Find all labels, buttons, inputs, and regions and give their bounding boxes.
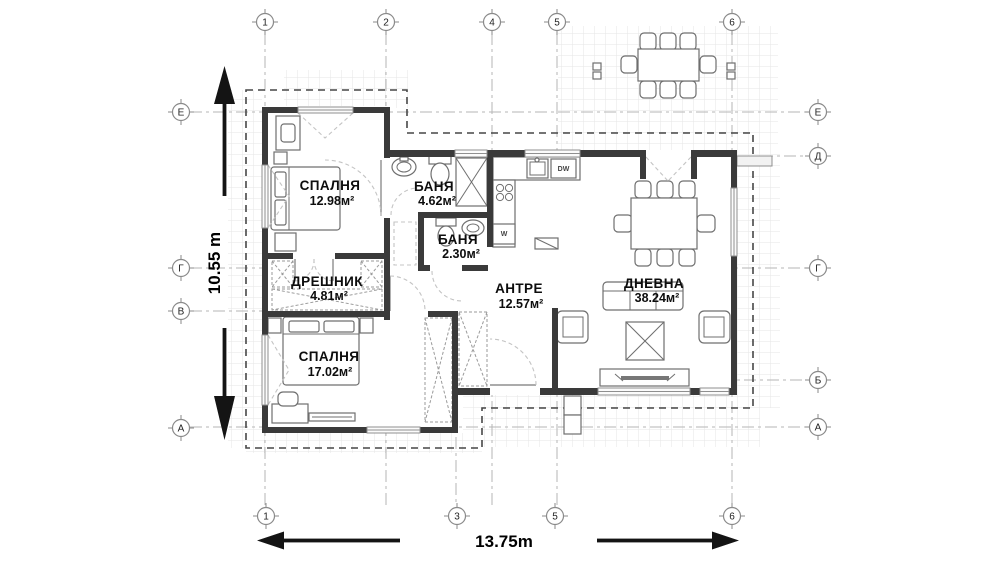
sink-icon [392,157,416,176]
room-label-closet: ДРЕШНИК [291,274,363,289]
svg-text:Б: Б [815,376,822,387]
axis-bubble-bottom-6: 6 [719,503,745,529]
room-area-hall: 12.57м² [499,297,544,311]
axis-bubble-right-a: А [805,414,831,440]
room-area-living: 38.24м² [635,291,680,305]
axis-bubble-left-e: Е [168,99,194,125]
axis-bubble-top-1: 1 [252,9,278,35]
washer-label: W [501,231,508,238]
svg-text:Г: Г [178,264,184,275]
axis-bubble-bottom-3: 3 [444,503,470,529]
room-area-bedroom-1: 12.98м² [310,194,355,208]
axis-bubble-right-e: Е [805,99,831,125]
svg-text:5: 5 [554,18,560,29]
floor-plan-page: DW W [0,0,1000,563]
svg-text:6: 6 [729,512,735,523]
room-label-bedroom-1: СПАЛНЯ [300,178,361,193]
entry-steps-icon [564,396,581,434]
svg-text:Г: Г [815,264,821,275]
shower-icon [456,158,487,206]
width-dimension: 13.75m [257,532,739,552]
chimney-stub [737,156,772,166]
room-label-hall: АНТРЕ [495,281,543,296]
axis-bubble-right-b: Б [805,367,831,393]
radiator-icon [309,413,355,421]
axis-bubble-left-g: Г [168,255,194,281]
room-label-living: ДНЕВНА [624,276,684,291]
svg-text:В: В [178,307,185,318]
floor-plan-drawing: DW W [0,0,1000,563]
axis-bubble-right-g: Г [805,255,831,281]
svg-text:Е: Е [815,108,822,119]
svg-text:1: 1 [262,18,268,29]
axis-bubble-right-d: Д [805,143,831,169]
room-area-bath-1: 4.62м² [418,194,456,208]
svg-text:А: А [178,424,185,435]
dishwasher-icon: DW [551,159,576,178]
svg-text:5: 5 [552,512,558,523]
axis-bubble-bottom-5: 5 [542,503,568,529]
height-dimension-label: 10.55 m [205,232,224,294]
room-label-bath-2: БАНЯ [438,232,478,247]
axis-bubble-top-2: 2 [373,9,399,35]
svg-text:3: 3 [454,512,460,523]
room-area-bedroom-2: 17.02м² [308,365,353,379]
tv-stand-icon [600,369,689,386]
svg-text:2: 2 [383,18,389,29]
axis-bubble-left-a: А [168,415,194,441]
svg-text:А: А [815,423,822,434]
width-dimension-label: 13.75m [475,532,533,551]
room-label-bath-1: БАНЯ [414,179,454,194]
svg-text:Е: Е [178,108,185,119]
coffee-table-icon [626,322,664,360]
axis-bubble-top-4: 4 [479,9,505,35]
axis-bubble-bottom-1: 1 [253,503,279,529]
svg-text:1: 1 [263,512,269,523]
room-area-closet: 4.81м² [310,289,348,303]
dishwasher-label: DW [558,166,570,173]
washer-icon: W [493,224,515,244]
room-label-bedroom-2: СПАЛНЯ [299,349,360,364]
svg-text:6: 6 [729,18,735,29]
axis-bubble-left-v: В [168,298,194,324]
svg-text:Д: Д [815,152,822,163]
room-area-bath-2: 2.30м² [442,247,480,261]
svg-text:4: 4 [489,18,495,29]
